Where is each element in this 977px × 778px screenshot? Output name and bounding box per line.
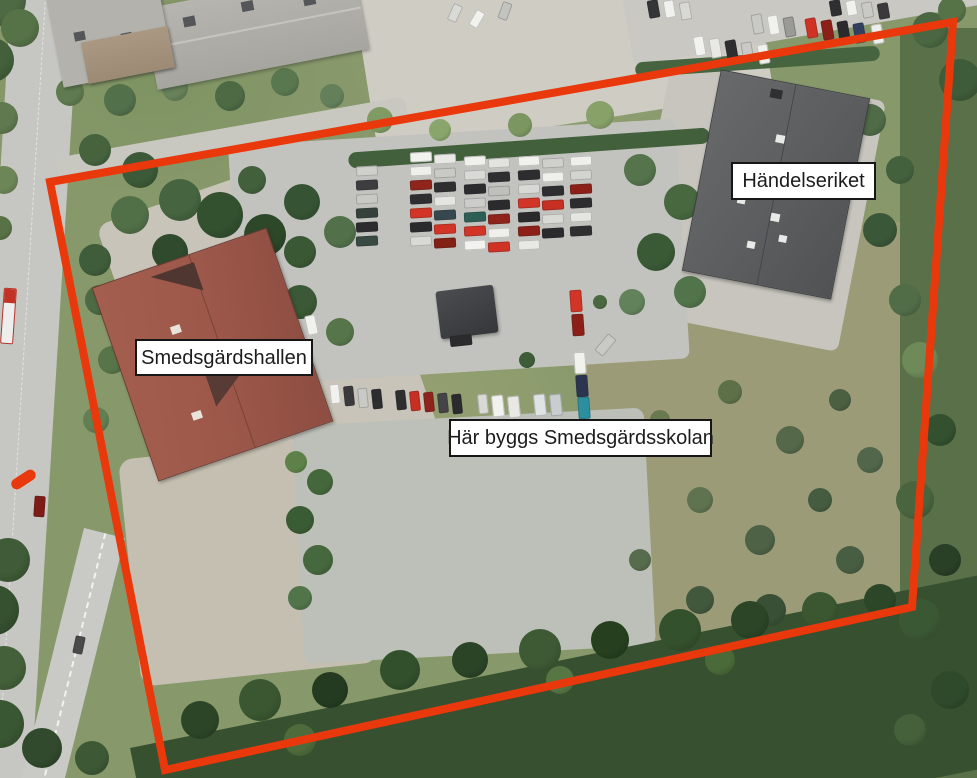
car [356,165,378,176]
tree-blob [929,544,961,576]
car [829,0,843,17]
label-construction-site: Här byggs Smedsgärdsskolan [449,419,712,457]
tree-blob [288,586,312,610]
tree-blob [886,156,914,184]
tree-blob [731,601,769,639]
car [852,22,866,44]
tree-blob [674,276,706,308]
car [437,393,449,414]
tree-blob [939,59,977,101]
roof-vent [770,213,780,223]
tree-blob [159,179,201,221]
label-handelseriket: Händelseriket [731,162,876,200]
car [571,314,585,337]
car [410,193,432,204]
car [357,388,369,409]
car [410,207,432,218]
car [488,241,510,252]
tree-blob [286,506,314,534]
tree-blob [519,629,561,671]
building-apartment-north [142,0,369,90]
car [533,393,547,416]
tree-blob [320,84,344,108]
tree-blob [808,488,832,512]
tree-blob [776,426,804,454]
tree-blob [111,196,149,234]
car [449,334,472,347]
tree-blob [284,184,320,220]
tree-blob [215,81,245,111]
roof-vent [191,410,203,421]
tree-blob [619,289,645,315]
car [464,197,486,208]
tree-blob [519,352,535,368]
car [518,239,540,250]
car [371,389,383,410]
car [488,227,510,238]
car [434,195,456,206]
car [423,392,435,413]
tree-blob [938,0,966,24]
tree-blob [75,741,109,775]
car [488,213,510,224]
tree-blob [829,389,851,411]
tree-blob [687,487,713,513]
car [542,227,564,238]
car [488,199,510,210]
roof-vent [170,324,182,335]
tree-blob [324,216,356,248]
tree-blob [637,233,675,271]
car [464,155,486,166]
car [488,185,510,196]
car [575,375,589,398]
tree-blob [285,451,307,473]
tree-blob [367,107,393,133]
tree-blob [508,113,532,137]
tree-blob [307,469,333,495]
tree-blob [591,621,629,659]
roof-vent [303,0,317,6]
aerial-map: Smedsgärdshallen Händelseriket Här byggs… [0,0,977,778]
car [464,211,486,222]
tree-blob [303,545,333,575]
car [570,183,592,194]
car [845,0,859,17]
car [570,225,592,236]
tree-blob [181,701,219,739]
tree-blob [864,584,896,616]
roof-vent [778,235,787,243]
tree-blob [745,525,775,555]
car [570,197,592,208]
car [542,199,564,210]
tree-blob [546,666,574,694]
car [570,211,592,222]
car [434,167,456,178]
car [434,223,456,234]
car [569,290,583,313]
car [451,394,463,415]
roof-vent [183,15,197,27]
car [570,169,592,180]
car [542,213,564,224]
roof-vent [73,31,86,42]
car [434,209,456,220]
tree-blob [284,724,316,756]
tree-blob [312,672,348,708]
roof-ridge [150,7,361,50]
truck-cab [4,289,16,304]
tree-blob [902,342,938,378]
car [464,225,486,236]
car [434,237,456,248]
tree-blob [593,295,607,309]
tree-blob [238,166,266,194]
tree-blob [857,447,883,473]
car [870,23,884,45]
car [542,157,564,168]
car [477,394,489,415]
car [410,221,432,232]
tree-blob [122,152,158,188]
car [356,207,378,218]
car [356,221,378,232]
car [434,153,456,164]
car [491,394,505,417]
tree-blob [452,642,488,678]
tree-blob [659,609,701,651]
building-small-dark [435,285,498,340]
car [507,395,521,418]
tree-blob [79,244,111,276]
car [542,171,564,182]
label-smedsgardshallen: Smedsgärdshallen [135,339,313,376]
car [410,235,432,246]
car [343,386,355,407]
car [549,393,563,416]
tree-blob [271,68,299,96]
tree-blob [326,318,354,346]
car [410,165,432,176]
tree-blob [197,192,243,238]
tree-blob [896,481,934,519]
tree-blob [429,119,451,141]
roof-shadow [150,262,203,305]
tree-blob [863,213,897,247]
tree-blob [686,586,714,614]
roof-vent [746,241,755,249]
tree-blob [1,9,39,47]
tree-blob [836,546,864,574]
roof-vent [775,134,785,144]
car [356,235,378,246]
tree-blob [22,728,62,768]
tree-blob [802,592,838,628]
car [756,43,770,65]
tree-blob [718,380,742,404]
tree-blob [629,549,651,571]
car [410,151,432,162]
tree-blob [83,407,109,433]
tree-blob [104,84,136,116]
tree-blob [284,236,316,268]
car [518,169,540,180]
car [410,179,432,190]
tree-blob [624,154,656,186]
tree-blob [380,650,420,690]
car [518,225,540,236]
car [395,390,407,411]
car [573,352,587,375]
car [570,155,592,166]
car [356,193,378,204]
tree-blob [899,599,941,641]
car [518,197,540,208]
car [464,169,486,180]
car [518,183,540,194]
tree-blob [586,101,614,129]
tree-blob [894,714,926,746]
tree-blob [931,671,969,709]
car [464,239,486,250]
tree-blob [889,284,921,316]
car [409,391,421,412]
tree-blob [924,414,956,446]
car [33,496,45,518]
tree-blob [79,134,111,166]
roof-vent [241,0,255,12]
roof-unit [770,88,783,99]
car [577,397,591,420]
tree-blob [705,645,735,675]
car [542,185,564,196]
car [329,384,341,405]
tree-blob [239,679,281,721]
car [434,181,456,192]
car [518,155,540,166]
car [488,157,510,168]
car [518,211,540,222]
car [356,179,378,190]
car [488,171,510,182]
car [464,183,486,194]
